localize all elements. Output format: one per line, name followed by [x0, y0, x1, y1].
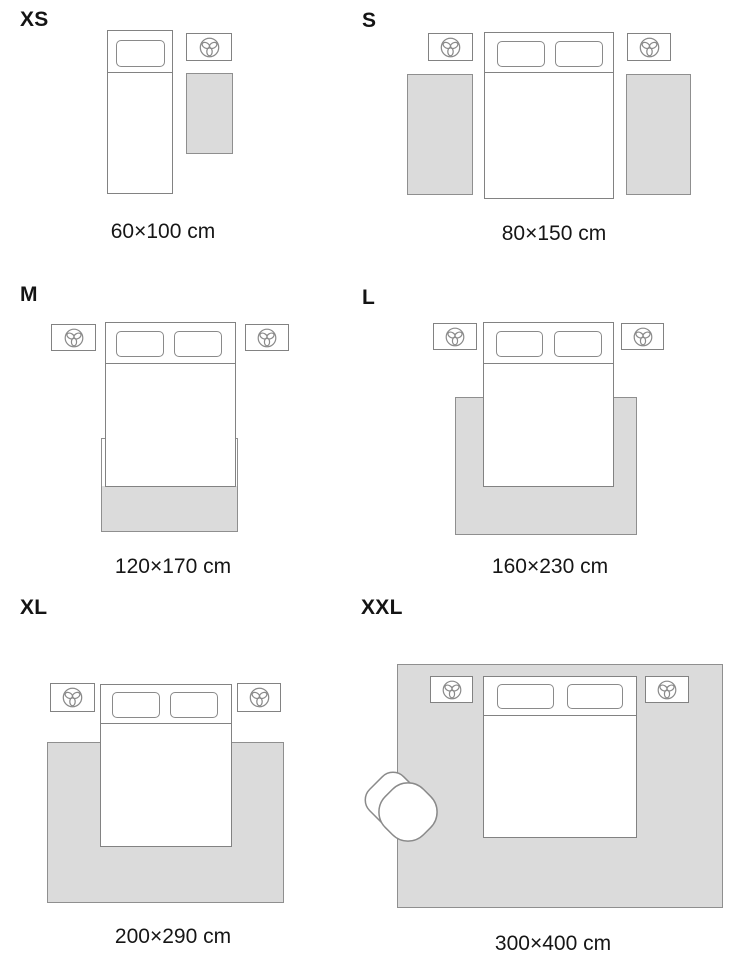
rug-s-left: [407, 74, 473, 195]
pillow: [116, 40, 165, 67]
pillow: [112, 692, 160, 718]
nightstand: [627, 33, 671, 61]
bed-headboard: [101, 685, 231, 724]
bed-headboard: [108, 31, 172, 73]
bed-headboard: [484, 677, 636, 716]
pillow: [496, 331, 543, 357]
pillow: [497, 684, 554, 709]
plant-icon: [198, 36, 221, 59]
bed-double: [483, 322, 614, 487]
tier-label-s: S: [362, 10, 376, 31]
plant-icon: [632, 326, 654, 348]
rug-xs: [186, 73, 233, 154]
bed-single: [107, 30, 173, 194]
plant-icon: [441, 679, 463, 701]
size-caption-xxl: 300×400 cm: [443, 933, 663, 954]
nightstand: [433, 323, 477, 350]
plant-icon: [248, 686, 271, 709]
pillow: [174, 331, 222, 357]
bed-double: [105, 322, 236, 487]
rug-size-guide: XS 60×100 cm S 80×150 cm M: [0, 0, 740, 960]
tier-label-xs: XS: [20, 9, 49, 30]
bed-headboard: [484, 323, 613, 364]
nightstand: [51, 324, 96, 351]
pillow: [116, 331, 164, 357]
size-caption-m: 120×170 cm: [63, 556, 283, 577]
pillow: [555, 41, 603, 67]
nightstand: [621, 323, 664, 350]
plant-icon: [444, 326, 466, 348]
bed-double: [483, 676, 637, 838]
tier-label-xxl: XXL: [361, 597, 403, 618]
bed-headboard: [106, 323, 235, 364]
size-caption-xs: 60×100 cm: [53, 221, 273, 242]
pillow: [567, 684, 623, 709]
plant-icon: [656, 679, 678, 701]
nightstand: [428, 33, 473, 61]
bed-double: [100, 684, 232, 847]
armchair-icon: [356, 760, 448, 852]
pillow: [497, 41, 545, 67]
size-caption-s: 80×150 cm: [444, 223, 664, 244]
bed-headboard: [485, 33, 613, 73]
size-caption-l: 160×230 cm: [440, 556, 660, 577]
rug-s-right: [626, 74, 691, 195]
nightstand: [50, 683, 95, 712]
nightstand: [645, 676, 689, 703]
size-caption-xl: 200×290 cm: [63, 926, 283, 947]
tier-label-xl: XL: [20, 597, 47, 618]
bed-double: [484, 32, 614, 199]
tier-label-m: M: [20, 284, 38, 305]
rug-exposed-area: [102, 486, 237, 531]
nightstand: [186, 33, 232, 61]
nightstand: [237, 683, 281, 712]
plant-icon: [439, 36, 462, 59]
nightstand: [245, 324, 289, 351]
plant-icon: [61, 686, 84, 709]
tier-label-l: L: [362, 287, 375, 308]
pillow: [170, 692, 218, 718]
pillow: [554, 331, 602, 357]
plant-icon: [256, 327, 278, 349]
plant-icon: [63, 327, 85, 349]
plant-icon: [638, 36, 661, 59]
nightstand: [430, 676, 473, 703]
